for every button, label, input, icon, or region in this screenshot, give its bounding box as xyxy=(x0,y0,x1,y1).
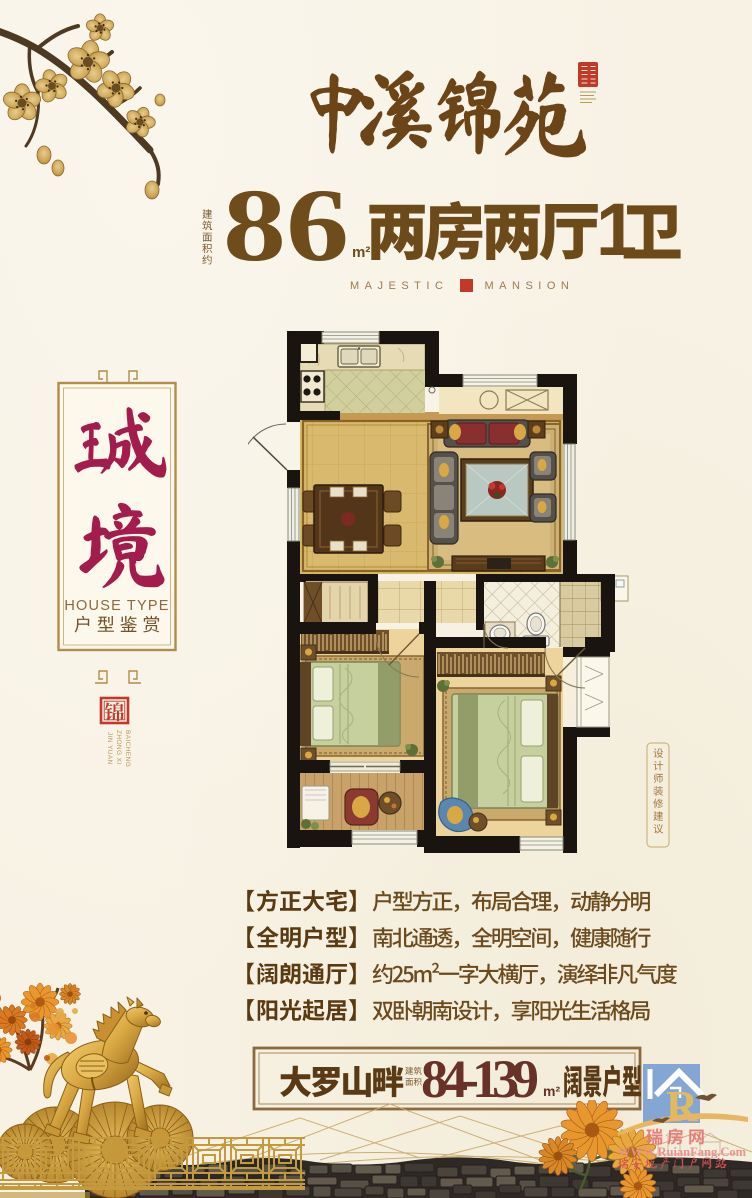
svg-text:JIN YUAN: JIN YUAN xyxy=(106,732,113,765)
svg-text:m²: m² xyxy=(352,244,370,261)
svg-text:1: 1 xyxy=(596,188,637,271)
svg-text:WWW.RuianFang.Com: WWW.RuianFang.Com xyxy=(618,1145,747,1159)
svg-text:R: R xyxy=(666,1082,699,1131)
svg-text:HOUSE TYPE: HOUSE TYPE xyxy=(64,598,169,614)
svg-text:86: 86 xyxy=(223,175,349,283)
svg-text:ZHONG XI: ZHONG XI xyxy=(115,730,122,765)
svg-text:BAICHENG: BAICHENG xyxy=(124,730,131,767)
